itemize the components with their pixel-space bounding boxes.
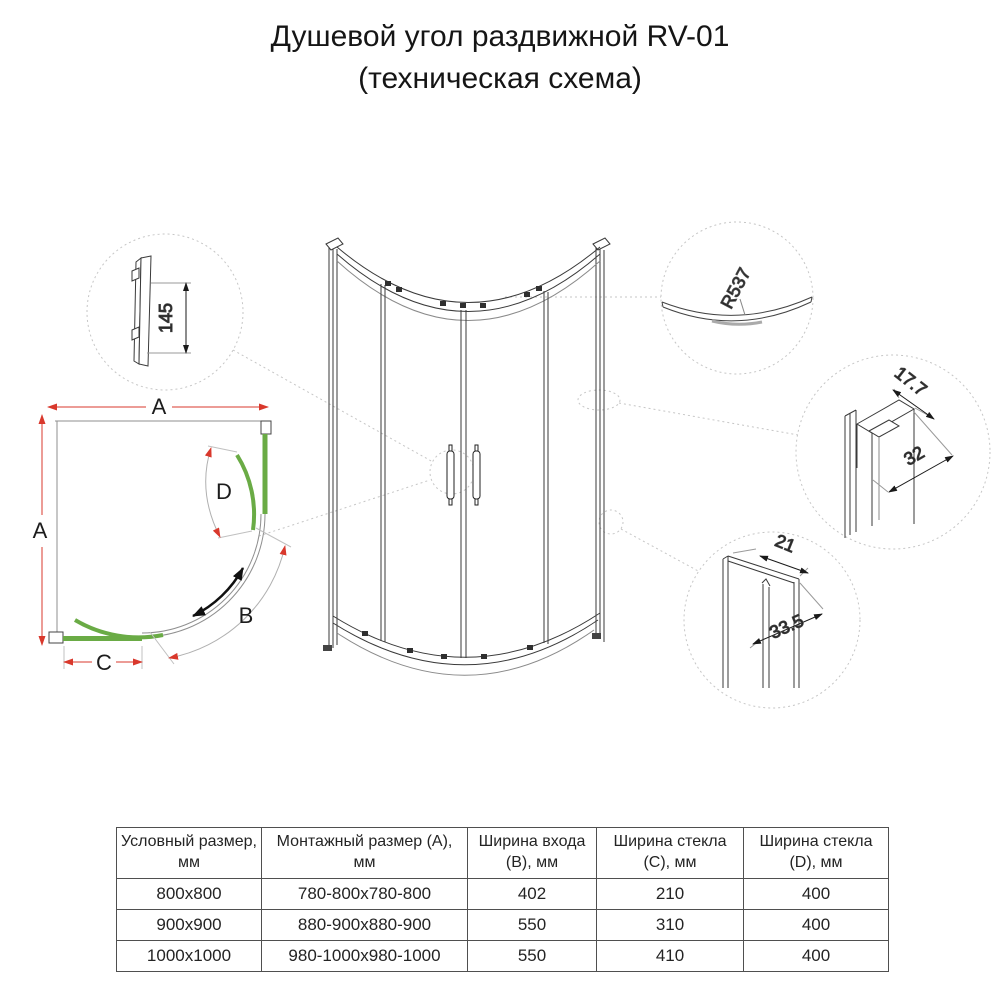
table-header-row: Условный размер, мм Монтажный размер (A)… (117, 828, 889, 879)
col-header-glass-d-width: Ширина стекла (D), мм (744, 828, 889, 879)
dim-label-a-left: A (33, 518, 48, 543)
dim-a-left: A (33, 415, 48, 645)
leader-wall-profile (619, 403, 798, 435)
top-rail (337, 247, 600, 321)
dim-label-32: 32 (900, 442, 927, 469)
leader-plan-to-handle (259, 480, 430, 536)
col-header-nominal-size: Условный размер, мм (117, 828, 262, 879)
detail-handle-145: 145 (132, 256, 191, 366)
left-fixed-glass-edge (381, 284, 385, 642)
left-profile-foot (323, 645, 332, 651)
cell-glass-d: 400 (744, 910, 889, 941)
dim-a-top: A (48, 394, 268, 419)
callout-circle-wall-profile (796, 355, 990, 549)
dim-c: C (64, 646, 142, 675)
col-header-glass-c-width: Ширина стекла (C), мм (597, 828, 744, 879)
col-header-mounting-size: Монтажный размер (A), мм (262, 828, 468, 879)
cell-mounting: 980-1000x980-1000 (262, 941, 468, 972)
table-row: 1000x1000 980-1000x980-1000 550 410 400 (117, 941, 889, 972)
plan-walls (55, 421, 271, 632)
dim-label-b: B (239, 603, 254, 628)
right-profile-foot (592, 633, 601, 639)
size-table: Условный размер, мм Монтажный размер (A)… (116, 827, 889, 972)
dim-d: D (206, 446, 252, 538)
plan-view: A A C B (33, 394, 291, 675)
cell-nominal: 900x900 (117, 910, 262, 941)
callout-source-profile (578, 390, 620, 410)
dim-label-d: D (216, 479, 232, 504)
cell-glass-d: 400 (744, 879, 889, 910)
cell-entry: 402 (468, 879, 597, 910)
dim-label-145: 145 (156, 303, 176, 333)
door-meeting-edge (461, 310, 466, 658)
plan-wall-profile-bottom-left (49, 632, 63, 643)
cell-nominal: 1000x1000 (117, 941, 262, 972)
cell-entry: 550 (468, 910, 597, 941)
cell-mounting: 780-800x780-800 (262, 879, 468, 910)
plan-sliding-door-lower (75, 620, 163, 637)
detail-radius-r537: R537 (662, 264, 812, 324)
detail-corner-profile: 21 33.5 (723, 530, 823, 688)
right-fixed-glass-edge (544, 291, 548, 644)
cell-mounting: 880-900x880-900 (262, 910, 468, 941)
callout-source-corner (599, 510, 623, 534)
plan-fixed-glass-right (263, 434, 268, 514)
cell-glass-c: 210 (597, 879, 744, 910)
slide-direction-arrow (193, 568, 243, 616)
dim-label-a-top: A (152, 394, 167, 419)
col-header-entry-width: Ширина входа (B), мм (468, 828, 597, 879)
table-row: 900x900 880-900x880-900 550 310 400 (117, 910, 889, 941)
dim-label-c: C (96, 650, 112, 675)
cell-glass-c: 310 (597, 910, 744, 941)
right-wall-profile (596, 247, 604, 642)
cell-entry: 550 (468, 941, 597, 972)
dim-label-33-5: 33.5 (766, 610, 806, 643)
technical-scheme-page: Душевой угол раздвижной RV-01 (техническ… (0, 0, 1000, 1000)
dim-label-r537: R537 (717, 264, 755, 311)
door-handles (447, 445, 480, 505)
callout-circle-corner-profile (684, 532, 860, 708)
plan-sliding-door-upper (237, 455, 254, 530)
detail-wall-profile: 17.7 32 (845, 363, 953, 538)
right-door-handle (473, 451, 480, 499)
left-wall-profile (329, 247, 337, 648)
leader-corner-profile (621, 529, 700, 572)
table-row: 800x800 780-800x780-800 402 210 400 (117, 879, 889, 910)
plan-wall-profile-top-right (261, 421, 271, 434)
cell-glass-c: 410 (597, 941, 744, 972)
cell-nominal: 800x800 (117, 879, 262, 910)
main-drawing (323, 238, 610, 675)
dim-label-21: 21 (772, 530, 798, 556)
bottom-rollers (362, 631, 533, 659)
left-door-handle (447, 451, 454, 499)
cell-glass-d: 400 (744, 941, 889, 972)
